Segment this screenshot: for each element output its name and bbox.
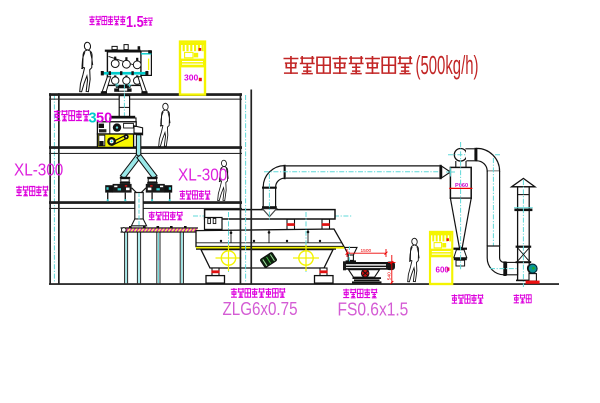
svg-text:(500kg/h): (500kg/h) [416, 52, 479, 80]
svg-text:1.5: 1.5 [126, 14, 144, 31]
svg-text:XL-300: XL-300 [178, 164, 227, 184]
svg-text:600: 600 [436, 266, 450, 275]
svg-text:P060: P060 [455, 183, 468, 189]
svg-text:FS0.6x1.5: FS0.6x1.5 [338, 299, 409, 320]
svg-text:XL-300: XL-300 [14, 159, 63, 179]
svg-text:50: 50 [96, 111, 112, 127]
svg-text:ZLG6x0.75: ZLG6x0.75 [223, 299, 298, 320]
svg-text:300: 300 [184, 73, 199, 83]
svg-text:540: 540 [386, 272, 392, 280]
svg-text:1500: 1500 [361, 248, 372, 254]
